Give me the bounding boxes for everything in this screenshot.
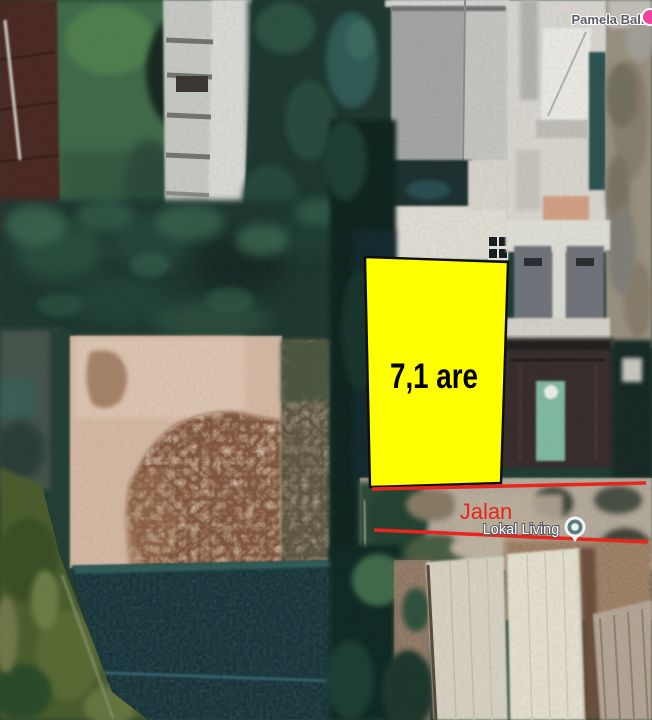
svg-text:Pamela Bali: Pamela Bali	[572, 12, 645, 27]
svg-text:Lokal Living: Lokal Living	[483, 522, 560, 538]
svg-text:7,1 are: 7,1 are	[390, 357, 478, 396]
svg-text:Jalan: Jalan	[460, 499, 513, 524]
